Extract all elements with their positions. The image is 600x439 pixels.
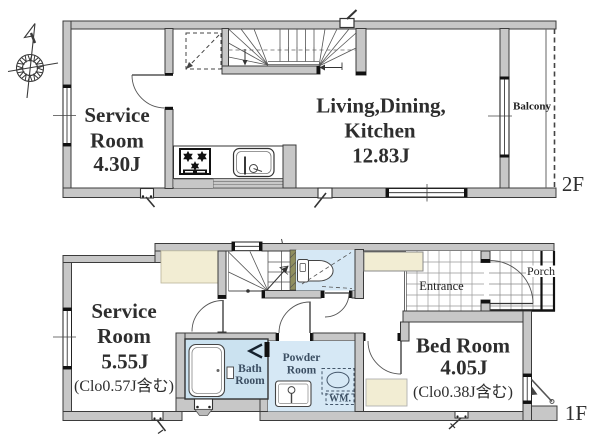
svg-text:12.83J: 12.83J (352, 144, 410, 168)
svg-text:Room: Room (235, 375, 265, 387)
svg-text:WM.: WM. (329, 394, 351, 405)
svg-text:Powder: Powder (283, 352, 321, 364)
svg-text:1F: 1F (565, 401, 587, 425)
svg-text:2F: 2F (562, 172, 584, 196)
svg-text:Bed Room: Bed Room (416, 334, 510, 358)
svg-text:Room: Room (97, 324, 151, 348)
svg-text:Entrance: Entrance (419, 279, 464, 293)
svg-text:Service: Service (91, 299, 156, 323)
svg-text:4.05J: 4.05J (440, 356, 487, 380)
svg-text:Service: Service (84, 103, 149, 127)
svg-text:(Clo0.38J含む): (Clo0.38J含む) (413, 383, 513, 401)
svg-text:Balcony: Balcony (513, 101, 551, 113)
svg-text:Living,Dining,: Living,Dining, (316, 94, 446, 118)
svg-text:Room: Room (90, 129, 144, 153)
svg-text:Porch: Porch (527, 264, 555, 278)
svg-text:Room: Room (287, 365, 317, 377)
svg-text:4.30J: 4.30J (93, 152, 140, 176)
svg-text:Kitchen: Kitchen (344, 119, 415, 143)
svg-text:Bath: Bath (238, 363, 262, 375)
svg-text:5.55J: 5.55J (101, 350, 148, 374)
svg-text:(Clo0.57J含む): (Clo0.57J含む) (74, 377, 174, 395)
